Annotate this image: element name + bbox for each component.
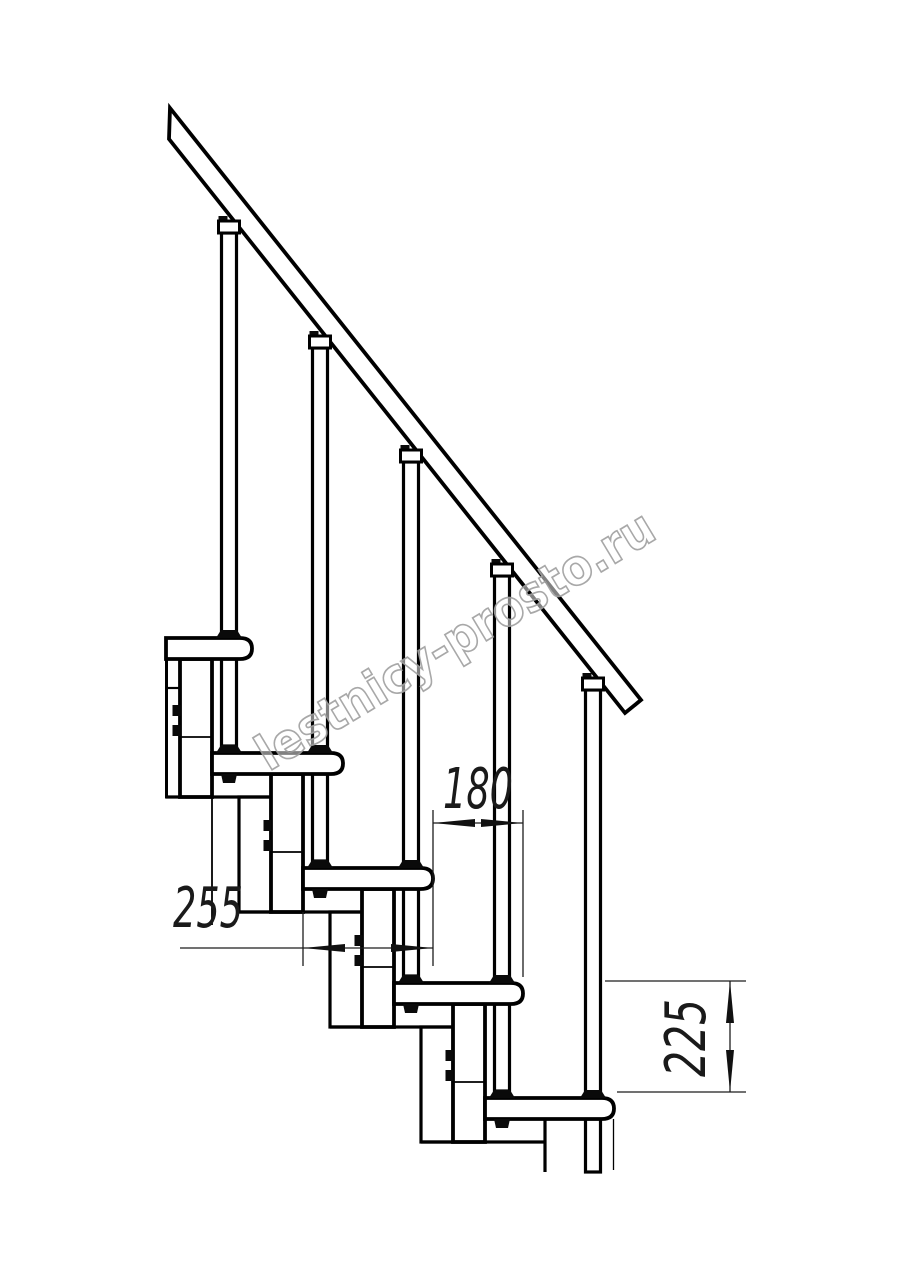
spine-module <box>453 1004 485 1142</box>
bolt <box>264 820 272 831</box>
baluster-cap <box>219 221 240 233</box>
baluster-foot <box>398 860 424 868</box>
support-post <box>313 774 328 861</box>
arrowhead-down <box>726 1050 734 1092</box>
spine-module <box>271 774 303 912</box>
tread-5 <box>485 1098 614 1119</box>
tread-bolt <box>403 1004 419 1013</box>
baluster-cap <box>401 450 422 462</box>
bolt <box>446 1050 454 1061</box>
tread-3 <box>303 868 433 889</box>
bolt <box>355 935 363 946</box>
baluster-cap <box>583 678 604 690</box>
dimension-label-180: 180 <box>443 757 513 822</box>
spine-tube <box>239 797 271 912</box>
tread-bolt <box>221 774 237 783</box>
bolt <box>355 955 363 966</box>
baluster <box>586 690 601 1098</box>
spine-module <box>362 889 394 1027</box>
tread-bolt <box>312 889 328 898</box>
baluster-foot <box>489 975 515 983</box>
support-post <box>495 1004 510 1091</box>
bolt <box>264 840 272 851</box>
dimension-step-rise: 225 <box>605 981 746 1092</box>
spine-tube <box>421 1027 453 1142</box>
tread-bolt <box>494 1119 510 1128</box>
baluster-cap <box>310 336 331 348</box>
tread-1 <box>166 638 252 659</box>
baluster <box>222 233 237 638</box>
post-foot <box>216 745 242 753</box>
support-post <box>586 1119 601 1172</box>
dimension-label-255: 255 <box>173 876 243 941</box>
spine-tube <box>330 912 362 1027</box>
post-foot <box>307 860 333 868</box>
post-foot <box>489 1090 515 1098</box>
bolt <box>173 705 181 716</box>
bolt <box>446 1070 454 1081</box>
staircase-technical-drawing: 255 180 225 lestnicy-prosto.ru <box>0 0 914 1280</box>
modular-staircase-side-view: 255 180 225 lestnicy-prosto.ru <box>0 0 914 1280</box>
support-post <box>222 659 237 746</box>
baluster-foot <box>216 630 242 638</box>
dimension-label-225: 225 <box>654 999 719 1077</box>
support-post <box>404 889 419 976</box>
spine-module <box>180 659 212 797</box>
tread-4 <box>394 983 523 1004</box>
arrowhead-up <box>726 981 734 1023</box>
bolt <box>173 725 181 736</box>
arrowhead-left <box>303 944 345 952</box>
post-foot <box>398 975 424 983</box>
